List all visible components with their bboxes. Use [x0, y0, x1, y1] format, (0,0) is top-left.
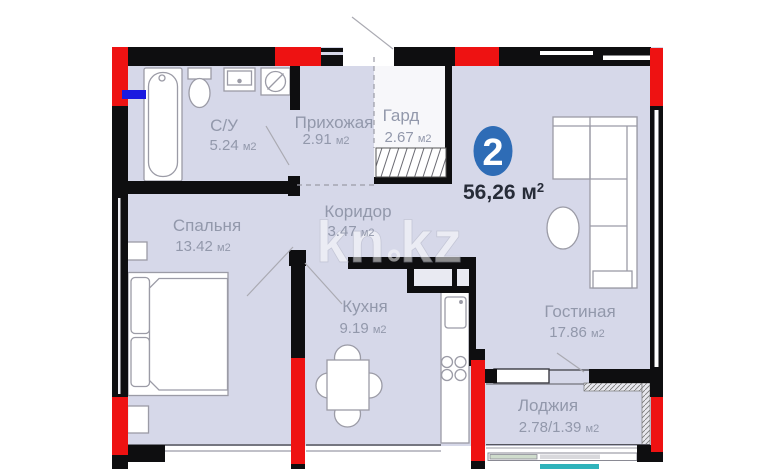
svg-text:Гард: Гард: [383, 106, 420, 125]
svg-text:С/У: С/У: [210, 116, 238, 135]
svg-text:2: 2: [482, 132, 503, 174]
svg-text:Коридор: Коридор: [324, 202, 391, 221]
svg-text:56,26 м2: 56,26 м2: [463, 180, 544, 204]
svg-text:Прихожая: Прихожая: [295, 113, 374, 132]
svg-text:Кухня: Кухня: [342, 297, 388, 316]
svg-text:Гостиная: Гостиная: [544, 302, 615, 321]
svg-text:Спальня: Спальня: [173, 216, 241, 235]
svg-text:Лоджия: Лоджия: [518, 396, 578, 415]
svg-text:kz: kz: [400, 210, 463, 275]
